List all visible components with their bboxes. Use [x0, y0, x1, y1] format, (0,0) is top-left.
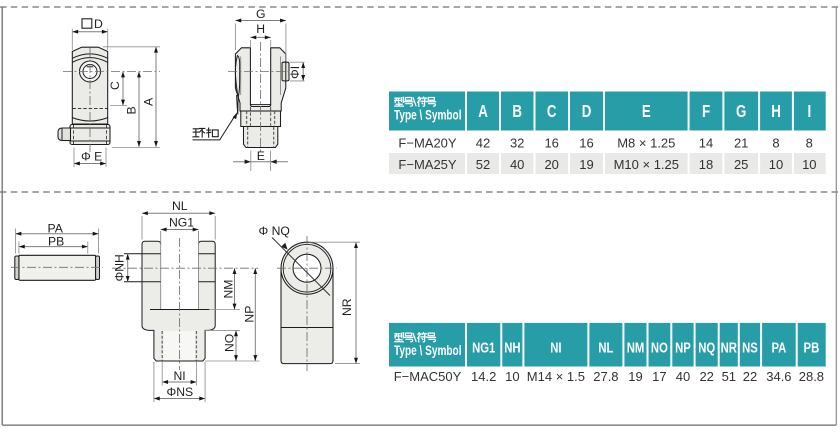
svg-text:F: F	[702, 102, 710, 121]
svg-text:E: E	[642, 102, 651, 121]
svg-text:NL: NL	[172, 199, 188, 213]
svg-text:25: 25	[734, 157, 748, 172]
svg-text:C: C	[108, 81, 122, 90]
svg-text:16: 16	[579, 135, 593, 150]
svg-text:16: 16	[544, 135, 558, 150]
svg-text:21: 21	[734, 135, 748, 150]
svg-text:NQ: NQ	[698, 339, 715, 356]
svg-text:27.8: 27.8	[593, 369, 618, 384]
svg-text:F−MA25Y: F−MA25Y	[398, 157, 456, 172]
svg-text:NS: NS	[742, 339, 758, 356]
svg-text:10: 10	[769, 157, 783, 172]
svg-text:19: 19	[579, 157, 593, 172]
svg-text:ΦNH: ΦNH	[113, 254, 127, 281]
svg-text:G: G	[256, 7, 265, 21]
svg-text:F−MA20Y: F−MA20Y	[398, 135, 456, 150]
svg-text:Type \ Symbol: Type \ Symbol	[394, 343, 462, 358]
svg-text:52: 52	[476, 157, 490, 172]
svg-text:D: D	[582, 102, 592, 121]
svg-text:F−MAC50Y: F−MAC50Y	[394, 369, 462, 384]
svg-text:B: B	[512, 102, 522, 121]
svg-text:NM: NM	[627, 339, 645, 356]
svg-text:14.2: 14.2	[471, 369, 496, 384]
svg-text:G: G	[736, 102, 746, 121]
svg-text:22: 22	[699, 369, 713, 384]
svg-text:NH: NH	[504, 339, 520, 356]
svg-text:40: 40	[676, 369, 690, 384]
svg-text:NI: NI	[550, 339, 561, 356]
svg-text:8: 8	[806, 135, 813, 150]
svg-text:NL: NL	[598, 339, 613, 356]
svg-text:NM: NM	[222, 280, 236, 299]
svg-text:20: 20	[544, 157, 558, 172]
svg-text:10: 10	[802, 157, 816, 172]
svg-text:NI: NI	[174, 369, 186, 383]
svg-text:ΦI: ΦI	[288, 66, 302, 79]
svg-text:NR: NR	[721, 339, 738, 356]
svg-text:E: E	[257, 149, 265, 163]
svg-text:34.6: 34.6	[766, 369, 791, 384]
svg-text:H: H	[771, 102, 781, 121]
svg-text:Φ E: Φ E	[81, 150, 102, 164]
svg-text:Type \ Symbol: Type \ Symbol	[394, 108, 462, 123]
svg-text:NO: NO	[651, 339, 668, 356]
svg-text:Φ NQ: Φ NQ	[259, 224, 290, 238]
svg-text:28.8: 28.8	[799, 369, 824, 384]
svg-text:51: 51	[722, 369, 736, 384]
svg-text:PB: PB	[804, 339, 820, 356]
svg-text:NG1: NG1	[169, 216, 194, 230]
svg-text:M8 × 1.25: M8 × 1.25	[617, 135, 675, 150]
svg-text:14: 14	[699, 135, 713, 150]
svg-text:NP: NP	[675, 339, 691, 356]
svg-text:22: 22	[743, 369, 757, 384]
svg-text:A: A	[478, 102, 488, 121]
svg-text:ΦNS: ΦNS	[167, 385, 194, 399]
svg-text:M10 × 1.25: M10 × 1.25	[614, 157, 679, 172]
svg-text:M14 × 1.5: M14 × 1.5	[527, 369, 585, 384]
svg-text:PA: PA	[771, 339, 786, 356]
svg-text:17: 17	[652, 369, 666, 384]
svg-text:C: C	[547, 102, 557, 121]
svg-text:I: I	[807, 102, 811, 121]
svg-text:42: 42	[476, 135, 490, 150]
svg-text:H: H	[256, 22, 265, 36]
svg-text:A: A	[141, 97, 155, 106]
svg-text:NO: NO	[223, 334, 237, 352]
svg-text:10: 10	[505, 369, 519, 384]
svg-text:40: 40	[510, 157, 524, 172]
svg-text:8: 8	[772, 135, 779, 150]
svg-text:19: 19	[628, 369, 642, 384]
svg-text:32: 32	[510, 135, 524, 150]
svg-text:NG1: NG1	[472, 339, 495, 356]
svg-text:B: B	[125, 106, 139, 114]
svg-text:NR: NR	[340, 298, 354, 316]
svg-text:D: D	[94, 17, 103, 31]
svg-text:NP: NP	[243, 306, 257, 323]
svg-text:18: 18	[699, 157, 713, 172]
